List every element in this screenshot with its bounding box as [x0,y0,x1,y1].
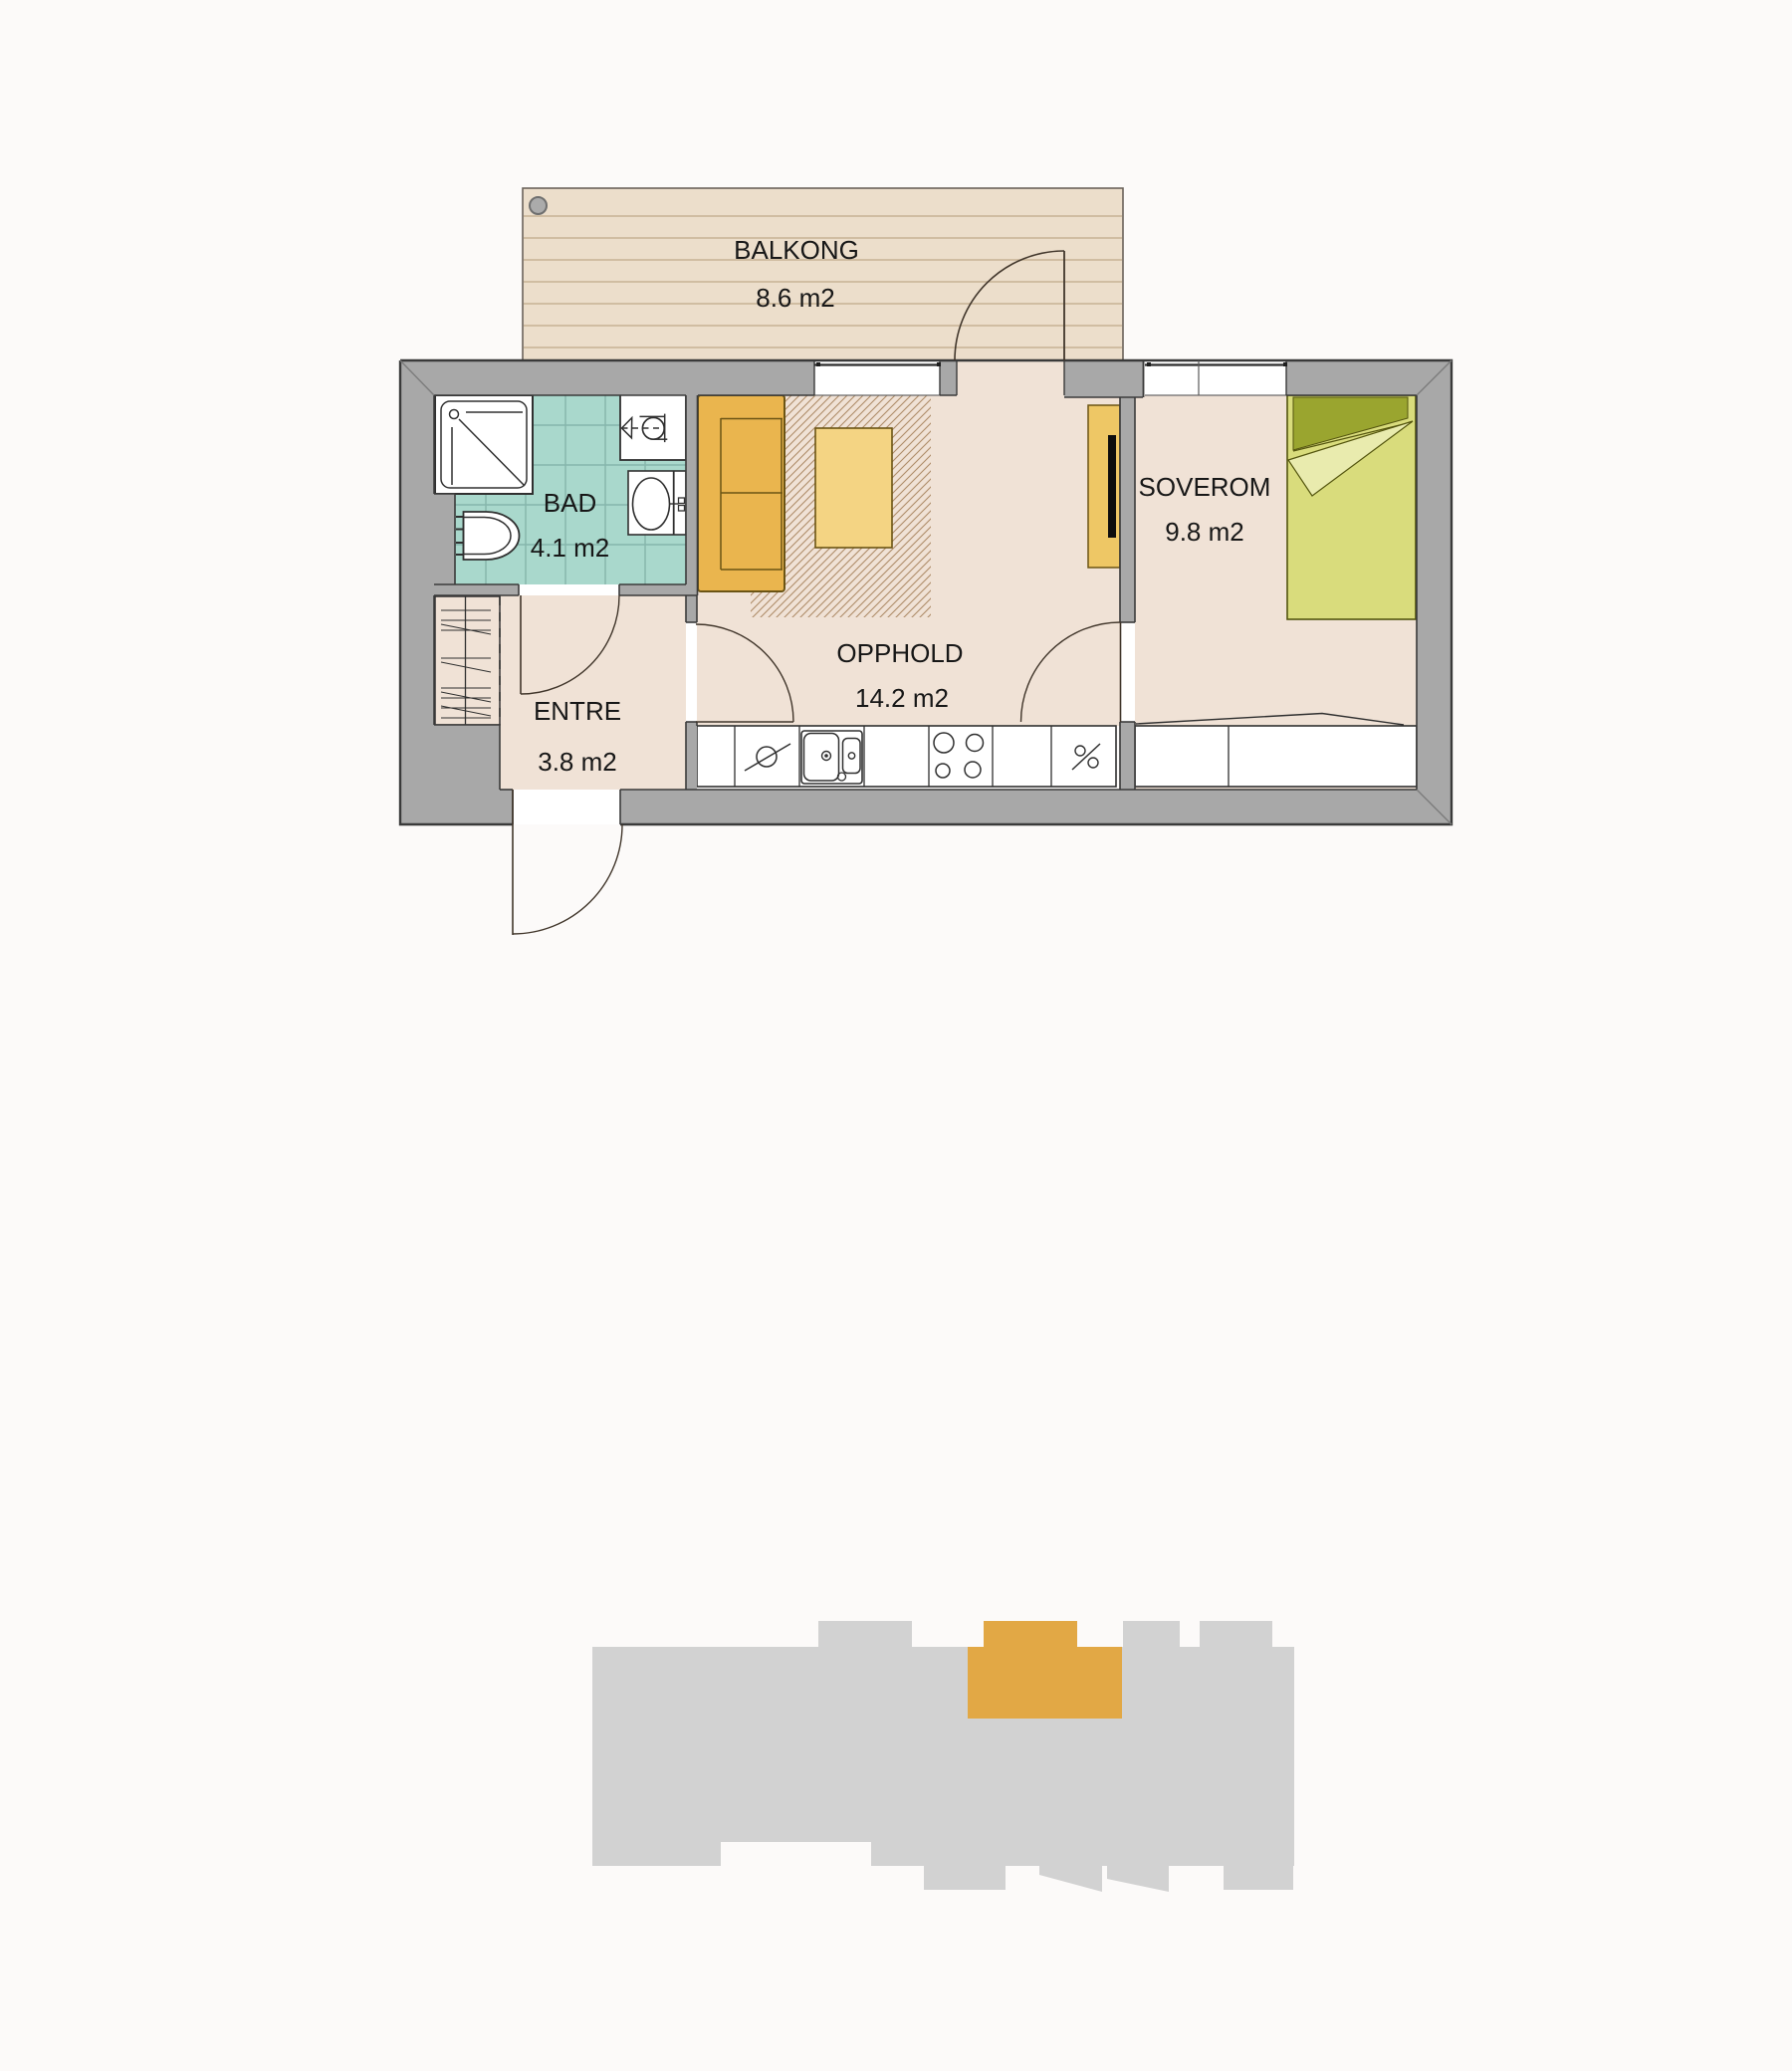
svg-text:OPPHOLD: OPPHOLD [836,638,963,668]
svg-text:8.6 m2: 8.6 m2 [756,283,835,313]
svg-text:9.8 m2: 9.8 m2 [1165,517,1244,547]
svg-text:BALKONG: BALKONG [734,235,859,265]
svg-text:14.2 m2: 14.2 m2 [855,683,949,713]
svg-text:ENTRE: ENTRE [534,696,621,726]
svg-text:SOVEROM: SOVEROM [1139,472,1271,502]
svg-text:4.1 m2: 4.1 m2 [531,533,610,563]
svg-text:3.8 m2: 3.8 m2 [538,747,617,777]
svg-text:BAD: BAD [544,488,596,518]
